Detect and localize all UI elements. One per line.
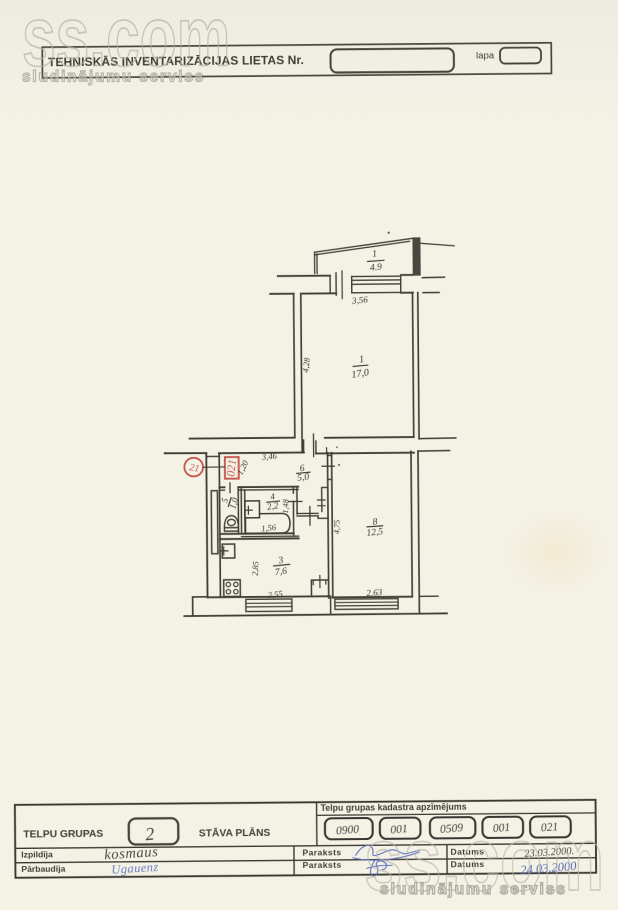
svg-text:Pārbaudīja: Pārbaudīja [21, 864, 65, 874]
svg-text:4,28: 4,28 [300, 356, 312, 373]
svg-text:Paraksts: Paraksts [302, 847, 341, 857]
svg-text:4.9: 4.9 [369, 262, 382, 273]
svg-text:2: 2 [144, 824, 155, 845]
svg-text:Ugauenz: Ugauenz [111, 860, 159, 877]
svg-text:Izpildīja: Izpildīja [21, 849, 53, 859]
svg-text:5,0: 5,0 [297, 472, 310, 483]
svg-text:2.63: 2.63 [366, 587, 383, 598]
svg-text:2,55: 2,55 [267, 588, 283, 600]
svg-text:sludinājumu serviss: sludinājumu serviss [380, 881, 567, 898]
svg-text:Paraksts: Paraksts [303, 860, 342, 870]
svg-text:3,46: 3,46 [260, 451, 278, 463]
svg-text:7,6: 7,6 [274, 566, 287, 578]
svg-text:1,48: 1,48 [281, 499, 290, 514]
svg-text:12,5: 12,5 [366, 527, 384, 539]
svg-text:sludinājumu serviss: sludinājumu serviss [22, 69, 205, 86]
svg-text:TELPU GRUPAS: TELPU GRUPAS [23, 829, 103, 841]
svg-text:lapa: lapa [476, 50, 495, 61]
svg-text:STĀVA PLĀNS: STĀVA PLĀNS [199, 827, 271, 840]
svg-text:0900: 0900 [336, 824, 360, 838]
svg-text:2,85: 2,85 [251, 561, 261, 576]
svg-text:3,56: 3,56 [351, 294, 369, 306]
svg-text:4,75: 4,75 [332, 520, 342, 535]
svg-text:1,56: 1,56 [261, 522, 278, 534]
